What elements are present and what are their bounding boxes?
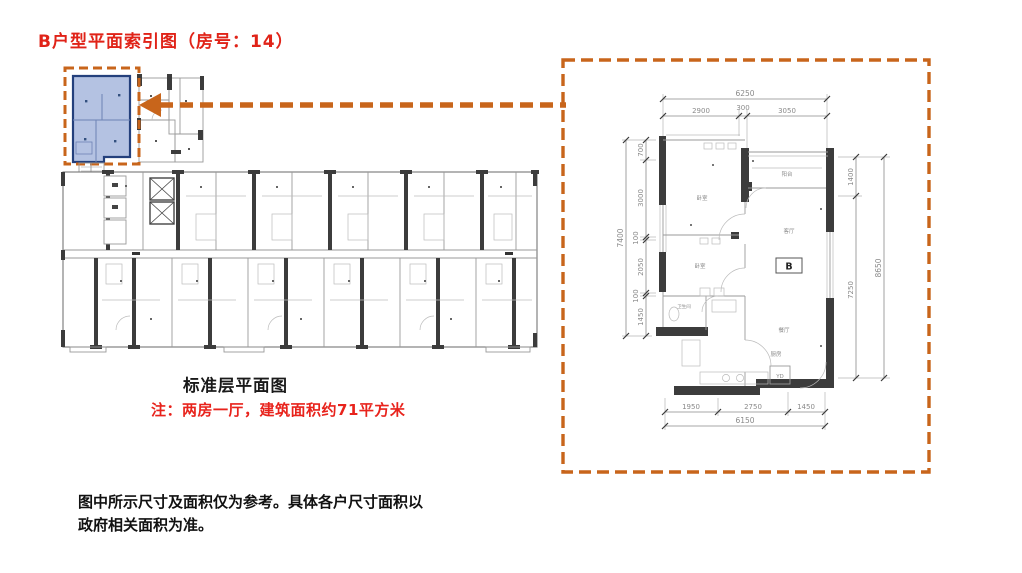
dim-left-3: 2050 bbox=[637, 258, 645, 276]
dim-bottom-1: 2750 bbox=[744, 403, 762, 411]
disclaimer-line2: 政府相关面积为准。 bbox=[78, 514, 518, 537]
highlighted-unit-b bbox=[73, 76, 130, 162]
dim-left-4: 100 bbox=[632, 289, 640, 302]
area-note: 注：两房一厅，建筑面积约71平方米 bbox=[151, 399, 405, 420]
room-label-bedroom2: 卧室 bbox=[694, 262, 706, 270]
dim-left-5: 1450 bbox=[637, 308, 645, 326]
overview-top-wing bbox=[137, 74, 204, 162]
page-title: B户型平面索引图（房号：14） bbox=[38, 27, 294, 52]
room-label-living: 客厅 bbox=[783, 227, 795, 235]
unit-b-label: B bbox=[785, 262, 792, 273]
dim-left-2: 100 bbox=[632, 231, 640, 244]
room-label-bath: 卫生间 bbox=[677, 303, 691, 310]
dim-top-0: 2900 bbox=[692, 107, 710, 115]
dim-bottom-total: 6150 bbox=[735, 416, 754, 425]
room-label-balcony: 阳台 bbox=[781, 170, 793, 178]
disclaimer: 图中所示尺寸及面积仅为参考。具体各户尺寸面积以 政府相关面积为准。 bbox=[78, 491, 518, 538]
slide-canvas: B户型平面索引图（房号：14） bbox=[0, 0, 1022, 573]
dims-left: 700 3000 100 2050 100 1450 7400 bbox=[616, 137, 656, 339]
dims-bottom: 1950 2750 1450 6150 bbox=[662, 392, 828, 430]
dim-left-total: 7400 bbox=[616, 228, 625, 247]
room-label-kitchen: 厨房 bbox=[770, 350, 782, 358]
building-overview-plan bbox=[50, 55, 570, 357]
room-label-dining: 餐厅 bbox=[778, 326, 790, 334]
unit-detail-plan: 阳台 卧室 客厅 卧室 卫生间 餐厅 厨房 YD B 6250 2900 bbox=[600, 82, 950, 452]
dims-right: 1400 7250 8650 bbox=[838, 154, 890, 381]
plan-caption: 标准层平面图 bbox=[183, 372, 288, 396]
room-label-laundry: YD bbox=[775, 374, 784, 380]
dim-bottom-2: 1450 bbox=[797, 403, 815, 411]
dim-left-1: 3000 bbox=[637, 189, 645, 207]
dims-top: 6250 2900 300 3050 bbox=[660, 89, 830, 148]
dim-top-2: 3050 bbox=[778, 107, 796, 115]
dim-left-0: 700 bbox=[637, 143, 645, 156]
dim-bottom-0: 1950 bbox=[682, 403, 700, 411]
dim-top-total: 6250 bbox=[735, 89, 754, 98]
dim-right-total: 8650 bbox=[874, 258, 883, 277]
unit-b-tag: B bbox=[776, 258, 802, 273]
room-label-bedroom1: 卧室 bbox=[696, 194, 708, 202]
disclaimer-line1: 图中所示尺寸及面积仅为参考。具体各户尺寸面积以 bbox=[78, 491, 518, 514]
dim-right-1: 7250 bbox=[847, 281, 855, 299]
overview-slab bbox=[61, 170, 539, 352]
dim-right-0: 1400 bbox=[847, 168, 855, 186]
dim-top-1: 300 bbox=[736, 104, 749, 112]
